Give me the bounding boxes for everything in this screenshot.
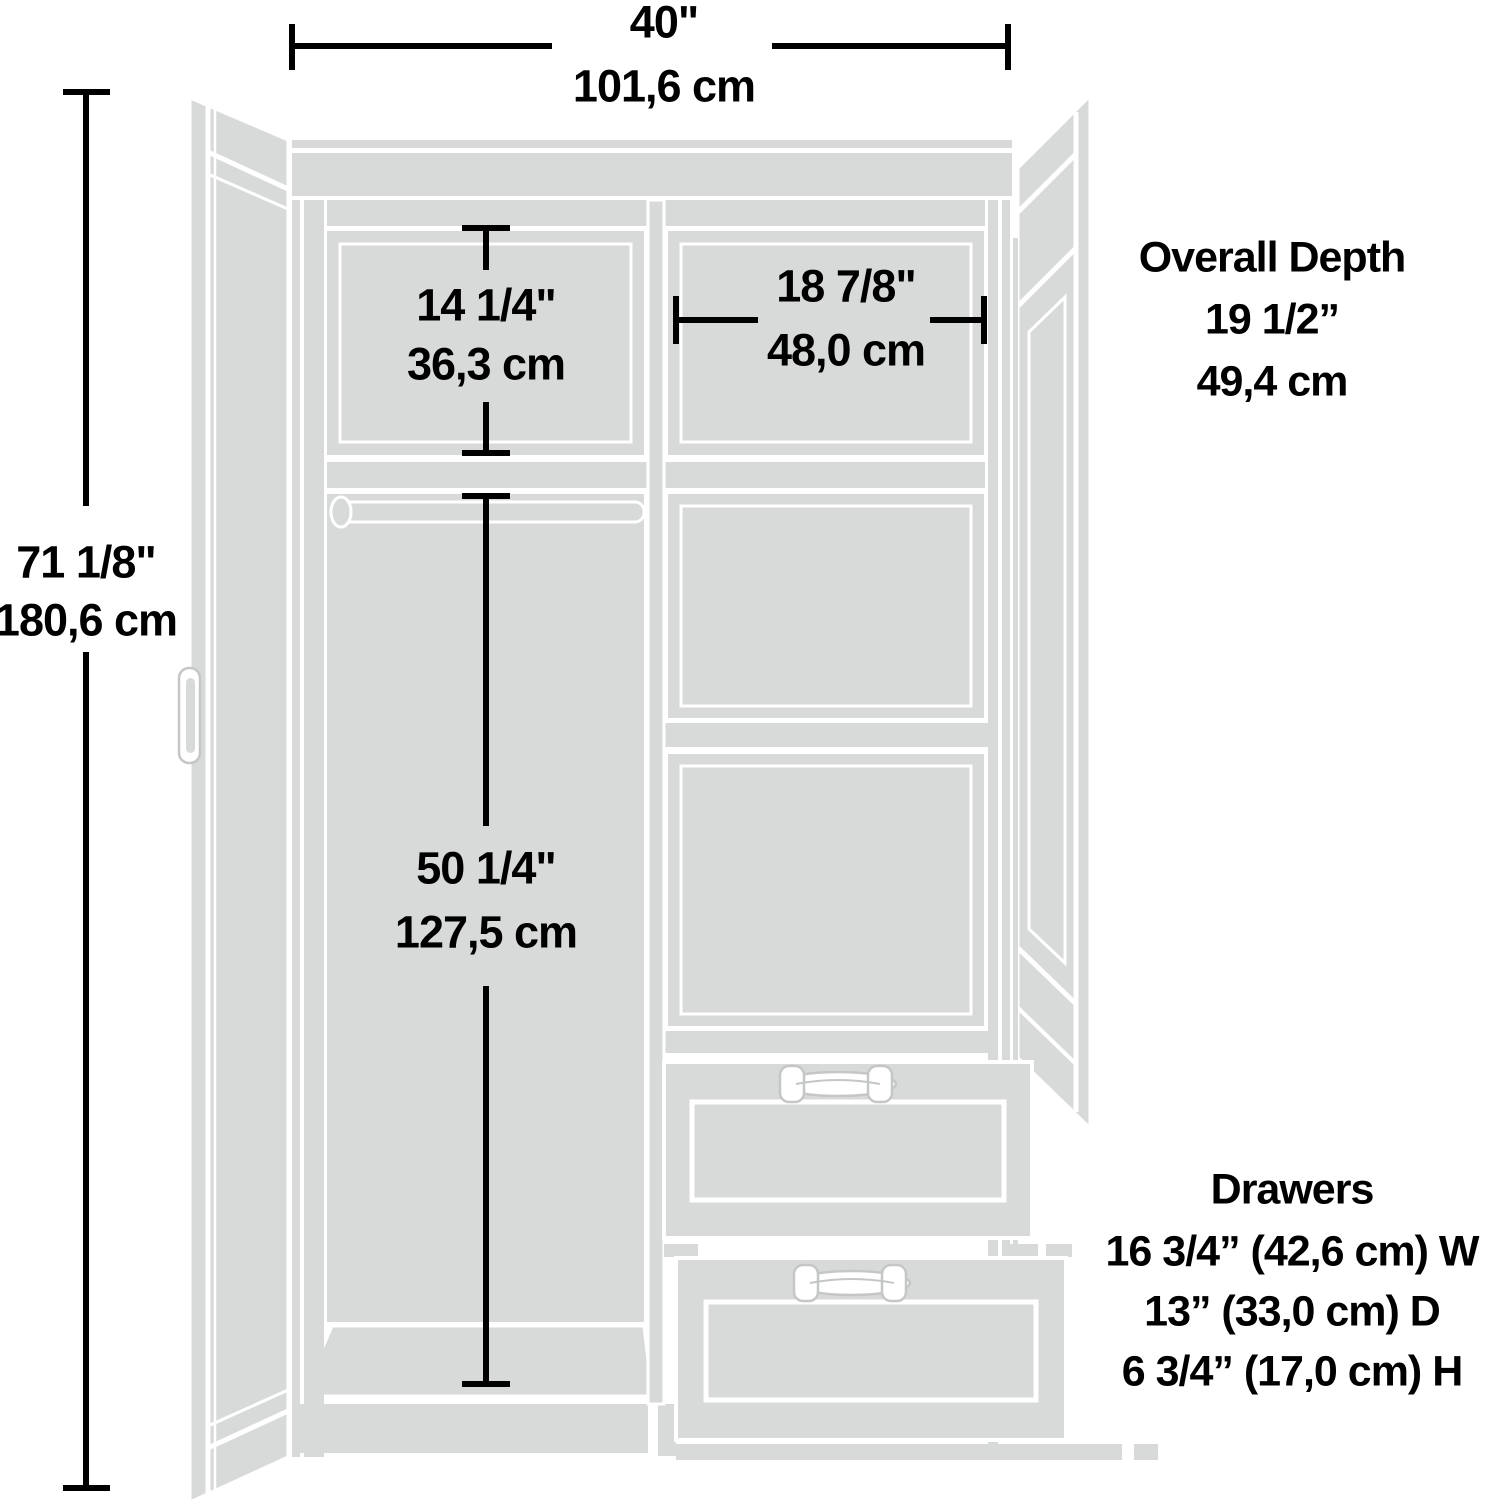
overall-depth-title-label: Overall Depth — [1139, 237, 1406, 280]
cabinet-base-band — [676, 1444, 1122, 1460]
right-lower-compartment — [668, 754, 984, 1026]
left-door-handle — [179, 668, 200, 763]
overall-height-metric-label: 180,6 cm — [0, 598, 177, 643]
right-middle-compartment — [668, 494, 984, 718]
hanging-compartment-inches-label: 50 1/4" — [416, 846, 555, 891]
hanging-compartment-metric-label: 127,5 cm — [395, 910, 577, 955]
drawers-depth-label: 13” (33,0 cm) D — [1144, 1291, 1440, 1334]
drawers-title-label: Drawers — [1211, 1169, 1374, 1212]
overall-depth-metric-label: 49,4 cm — [1197, 361, 1348, 404]
left-bottom-rail — [298, 1404, 648, 1453]
left-door — [179, 98, 288, 1500]
right-door — [1018, 96, 1090, 1128]
left-stile-outer — [292, 200, 300, 1457]
cabinet-top — [292, 140, 1012, 196]
cabinet-top-band — [292, 153, 1012, 196]
right-shelf-2 — [654, 1030, 998, 1054]
cabinet-base-foot — [1134, 1444, 1158, 1460]
drawers-width-label: 16 3/4” (42,6 cm) W — [1106, 1231, 1479, 1274]
overall-height-dimension — [63, 92, 110, 1488]
hanger-rod-bar — [340, 502, 644, 522]
right-shelf-1 — [654, 722, 998, 748]
center-divider — [648, 200, 664, 1404]
upper-right-compartment-metric-label: 48,0 cm — [767, 328, 925, 373]
hanger-rod-cap — [331, 497, 351, 527]
drawer-rail-right-end — [1046, 1244, 1072, 1257]
left-door-handle-inner — [186, 678, 195, 753]
drawers-height-label: 6 3/4” (17,0 cm) H — [1122, 1351, 1463, 1394]
drawer-rail-right — [1004, 1244, 1038, 1257]
cabinet-top-edge — [292, 140, 1012, 148]
upper-left-compartment-inches-label: 14 1/4" — [416, 283, 555, 328]
overall-width-inches-label: 40" — [630, 0, 698, 45]
overall-width-metric-label: 101,6 cm — [573, 64, 755, 109]
upper-right-compartment-inches-label: 18 7/8" — [776, 264, 915, 309]
drawer-1 — [664, 1062, 1072, 1257]
drawer-1-handle — [780, 1066, 896, 1102]
wardrobe-dimension-diagram: 40" 101,6 cm 71 1/8" 180,6 cm 14 1/4" 36… — [0, 0, 1491, 1500]
upper-left-compartment-metric-label: 36,3 cm — [407, 342, 565, 387]
drawer-2 — [676, 1258, 1158, 1460]
left-door-face — [190, 98, 288, 1500]
overall-depth-inches-label: 19 1/2” — [1205, 299, 1339, 342]
overall-height-inches-label: 71 1/8" — [16, 540, 155, 585]
drawer-rail-left — [664, 1244, 698, 1257]
divider-foot — [658, 1404, 676, 1456]
left-stile-inner — [304, 200, 324, 1457]
drawer-2-handle — [794, 1265, 910, 1301]
